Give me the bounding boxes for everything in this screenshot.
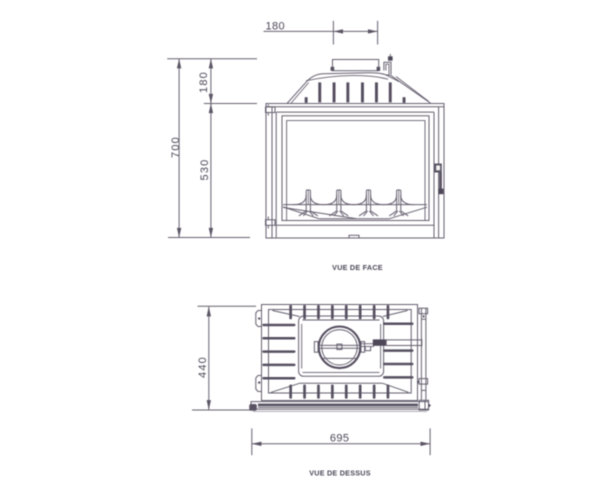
svg-text:180: 180 — [198, 71, 210, 93]
svg-text:440: 440 — [197, 356, 209, 378]
svg-text:VUE DE FACE: VUE DE FACE — [332, 263, 383, 272]
svg-text:695: 695 — [330, 432, 350, 444]
svg-text:700: 700 — [170, 136, 182, 158]
svg-text:180: 180 — [266, 21, 286, 33]
svg-text:530: 530 — [199, 159, 211, 181]
svg-text:VUE DE DESSUS: VUE DE DESSUS — [309, 469, 371, 478]
